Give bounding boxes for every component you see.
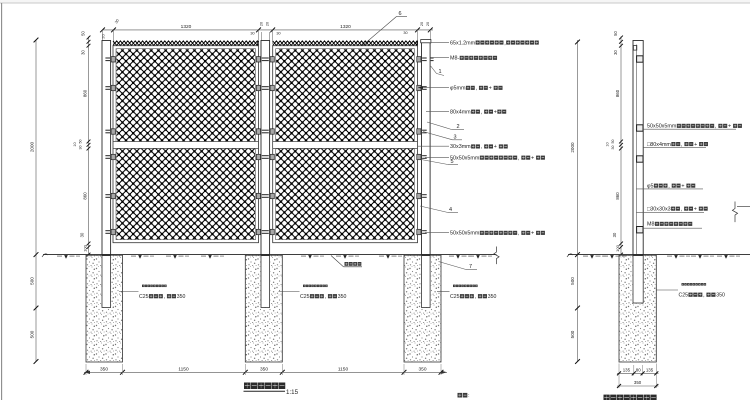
svg-text:30: 30 bbox=[612, 232, 617, 237]
svg-text:860: 860 bbox=[83, 192, 88, 200]
svg-text:350: 350 bbox=[634, 380, 642, 385]
svg-text:,: , bbox=[703, 293, 704, 299]
svg-text:,: , bbox=[325, 294, 326, 300]
svg-text:C25: C25 bbox=[300, 294, 310, 300]
svg-text:□80x4mm: □80x4mm bbox=[647, 142, 671, 148]
svg-text:350: 350 bbox=[716, 293, 725, 299]
svg-text:80x4mm: 80x4mm bbox=[450, 109, 471, 115]
svg-text:50x50x5mm: 50x50x5mm bbox=[450, 231, 480, 237]
svg-text:50: 50 bbox=[613, 31, 618, 36]
svg-text:□30x30x3: □30x30x3 bbox=[647, 206, 671, 212]
svg-text:1320: 1320 bbox=[340, 24, 351, 30]
svg-text:10: 10 bbox=[606, 142, 610, 146]
svg-text:+: + bbox=[494, 144, 497, 150]
svg-text:+: + bbox=[489, 86, 492, 92]
svg-text:500: 500 bbox=[30, 277, 35, 285]
svg-text:+: + bbox=[494, 109, 497, 115]
svg-text:350: 350 bbox=[100, 366, 108, 372]
svg-text:30: 30 bbox=[611, 146, 615, 150]
svg-text:1150: 1150 bbox=[178, 366, 189, 372]
svg-text:860: 860 bbox=[615, 192, 620, 200]
svg-text:+: + bbox=[728, 124, 731, 130]
svg-text:1:15: 1:15 bbox=[286, 389, 299, 396]
svg-text:350: 350 bbox=[338, 294, 347, 300]
svg-text:100: 100 bbox=[83, 244, 88, 251]
svg-text:30: 30 bbox=[79, 146, 83, 150]
svg-text:50x50x5mm: 50x50x5mm bbox=[450, 155, 480, 161]
svg-text:M8: M8 bbox=[647, 222, 655, 228]
svg-text:7: 7 bbox=[469, 264, 472, 270]
svg-text:30: 30 bbox=[276, 32, 280, 36]
svg-text:+: + bbox=[694, 206, 697, 212]
svg-text:C25: C25 bbox=[450, 294, 460, 300]
svg-text:135: 135 bbox=[623, 368, 631, 373]
svg-text:+: + bbox=[531, 155, 534, 161]
svg-text:30: 30 bbox=[81, 50, 86, 55]
svg-text:500: 500 bbox=[570, 277, 575, 285]
svg-text:860: 860 bbox=[615, 89, 620, 97]
svg-text:2000: 2000 bbox=[570, 142, 575, 153]
svg-text:20: 20 bbox=[101, 34, 106, 39]
svg-text:4: 4 bbox=[449, 207, 452, 213]
svg-text:50: 50 bbox=[79, 140, 83, 144]
svg-text:30x3mm: 30x3mm bbox=[450, 144, 471, 150]
svg-text:1150: 1150 bbox=[338, 366, 349, 372]
svg-text:+: + bbox=[531, 231, 534, 237]
svg-text:50x50x5mm: 50x50x5mm bbox=[647, 124, 677, 130]
svg-text:860: 860 bbox=[83, 89, 88, 97]
svg-text:50: 50 bbox=[611, 140, 615, 144]
svg-text:20: 20 bbox=[266, 22, 270, 26]
svg-text:30: 30 bbox=[80, 232, 85, 237]
svg-text:30: 30 bbox=[403, 31, 407, 35]
svg-text:350: 350 bbox=[418, 366, 426, 372]
svg-text:500: 500 bbox=[570, 330, 575, 338]
svg-text:1: 1 bbox=[438, 69, 441, 75]
svg-text:10: 10 bbox=[73, 142, 77, 146]
svg-text:50: 50 bbox=[81, 31, 86, 36]
svg-text:C25: C25 bbox=[139, 294, 149, 300]
svg-text:350: 350 bbox=[488, 294, 497, 300]
svg-text:20: 20 bbox=[426, 22, 430, 26]
svg-text:C25: C25 bbox=[679, 293, 689, 299]
svg-text:20: 20 bbox=[260, 22, 264, 26]
svg-text:100: 100 bbox=[615, 244, 620, 251]
svg-text::: : bbox=[468, 393, 469, 399]
svg-text:2000: 2000 bbox=[30, 141, 35, 152]
svg-text:+: + bbox=[681, 183, 684, 189]
svg-text:+: + bbox=[694, 142, 697, 148]
svg-text:M8-: M8- bbox=[450, 56, 459, 62]
svg-text:30: 30 bbox=[250, 32, 254, 36]
svg-text:3: 3 bbox=[453, 135, 456, 141]
svg-text:,: , bbox=[164, 294, 165, 300]
svg-text:1320: 1320 bbox=[181, 24, 192, 30]
svg-text:2: 2 bbox=[456, 124, 459, 130]
svg-text:φ5mm: φ5mm bbox=[450, 86, 466, 92]
svg-text:350: 350 bbox=[260, 366, 268, 372]
svg-text:φ5: φ5 bbox=[647, 183, 654, 189]
svg-text:135: 135 bbox=[646, 368, 654, 373]
svg-text:80: 80 bbox=[636, 368, 641, 373]
svg-text:5: 5 bbox=[450, 159, 453, 165]
svg-text:,: , bbox=[475, 294, 476, 300]
svg-text:350: 350 bbox=[177, 294, 186, 300]
svg-text:30: 30 bbox=[613, 50, 618, 55]
svg-text:20: 20 bbox=[420, 22, 424, 26]
svg-text:65x1.2mm: 65x1.2mm bbox=[450, 40, 476, 46]
svg-text:6: 6 bbox=[398, 11, 401, 17]
svg-text:500: 500 bbox=[30, 330, 35, 338]
